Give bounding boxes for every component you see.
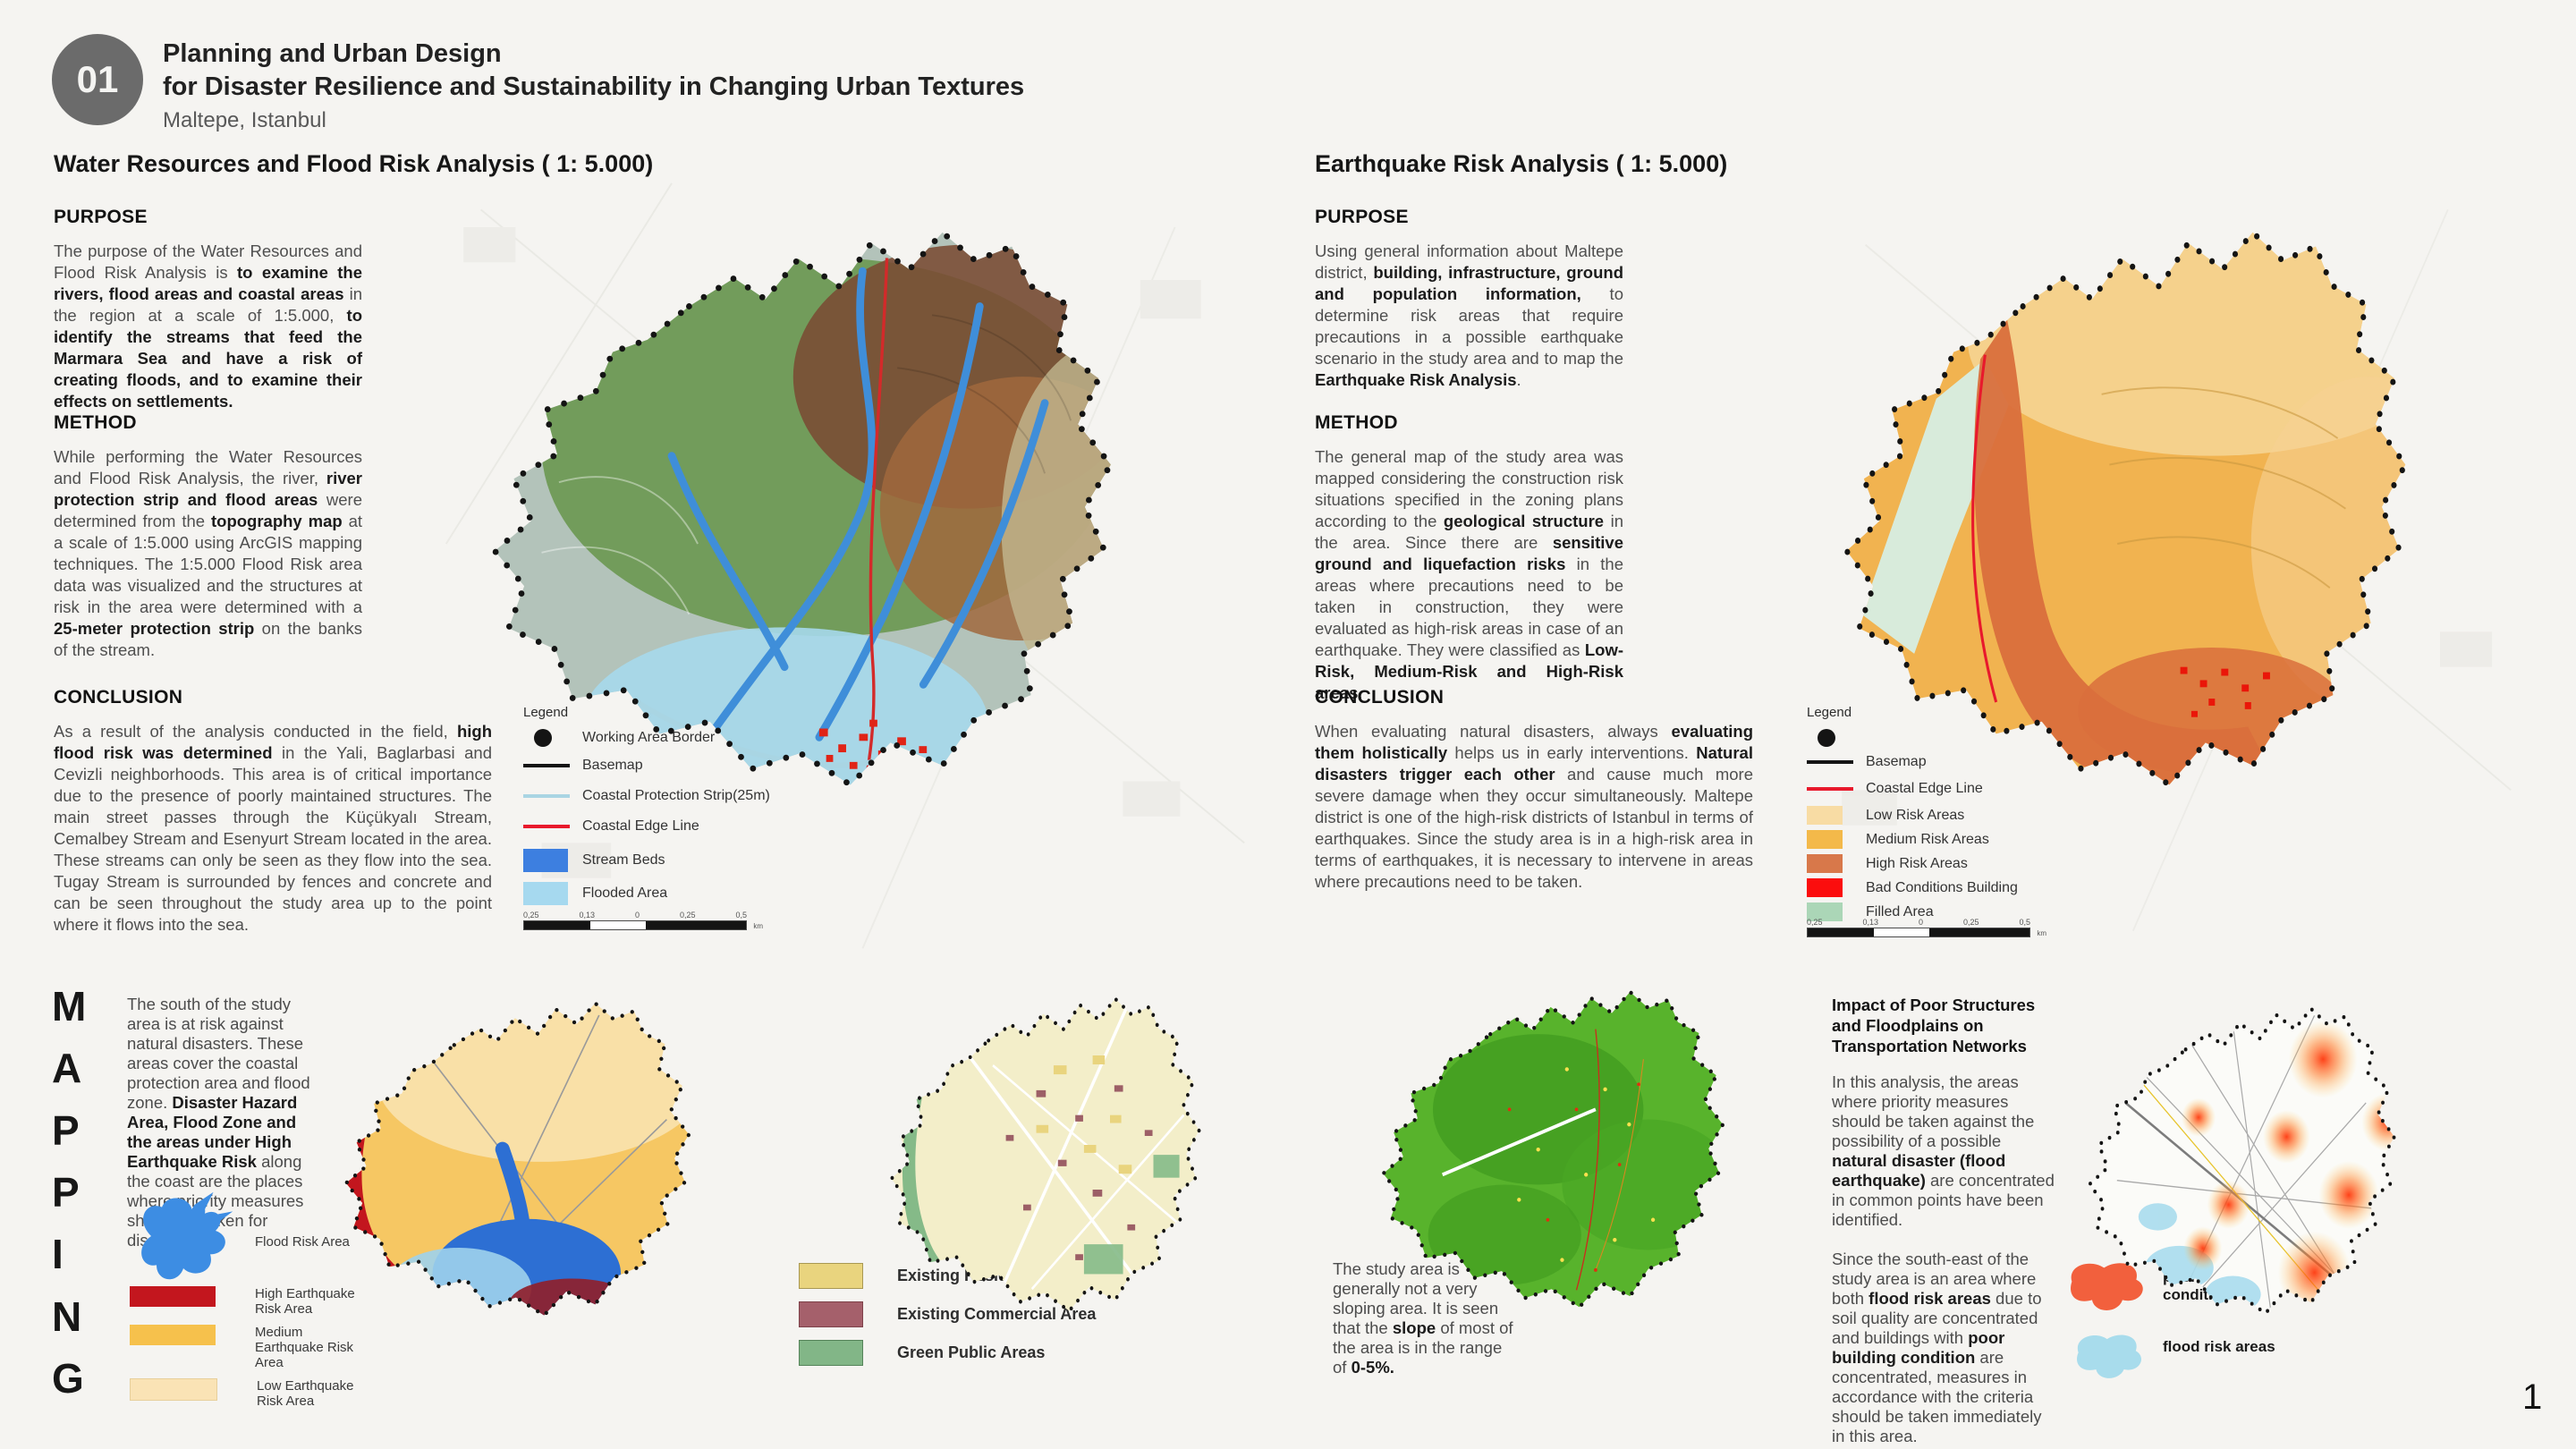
water-purpose-title: PURPOSE	[54, 207, 362, 228]
water-method-title: METHOD	[54, 412, 362, 434]
quake-purpose-section: PURPOSE Using general information about …	[1315, 207, 1623, 391]
poster-title-line2: for Disaster Resilience and Sustainabili…	[163, 71, 1024, 104]
scalebar-labels: 0,25 0,13 0 0,25 0,5	[523, 911, 747, 919]
basemap-swatch	[523, 764, 570, 767]
legend-item: Coastal Edge Line	[1807, 781, 2066, 797]
medium-risk-areas-swatch	[1807, 830, 1843, 849]
water-purpose-section: PURPOSE The purpose of the Water Resourc…	[54, 207, 362, 412]
legend-item: Basemap	[1807, 754, 2066, 770]
poster-subtitle: Maltepe, Istanbul	[163, 106, 1024, 135]
water-map-scalebar: 0,25 0,13 0 0,25 0,5 km	[523, 911, 747, 930]
quake-method-title: METHOD	[1315, 412, 1623, 434]
legend-item: Working Area Border	[523, 729, 774, 747]
water-method-text: While performing the Water Resources and…	[54, 446, 362, 661]
water-purpose-text: The purpose of the Water Resources and F…	[54, 241, 362, 412]
flooded-area-swatch	[523, 882, 568, 905]
high-earthquake-risk-swatch	[130, 1286, 216, 1307]
flood-risk-area-shape	[130, 1188, 237, 1284]
low-earthquake-risk-swatch	[130, 1378, 217, 1401]
slope-map	[1337, 959, 1816, 1411]
poster-title-line1: Planning and Urban Design	[163, 38, 1024, 71]
scalebar-bar	[1807, 928, 2030, 937]
hazard-composite-map	[300, 970, 783, 1418]
page-number: 1	[2522, 1377, 2542, 1418]
quake-map-legend: Legend Basemap Coastal Edge Line Low Ris…	[1807, 705, 2066, 929]
quake-legend-title: Legend	[1807, 705, 2066, 720]
basemap-swatch	[1807, 760, 1853, 764]
transport-impact-section: Impact of Poor Structures and Floodplain…	[1832, 995, 2055, 1446]
low-risk-areas-swatch	[1807, 806, 1843, 825]
bad-conditions-building-swatch	[1807, 878, 1843, 897]
quake-method-section: METHOD The general map of the study area…	[1315, 412, 1623, 704]
legend-item: High Risk Areas	[1807, 854, 2066, 873]
quake-purpose-title: PURPOSE	[1315, 207, 1623, 228]
medium-earthquake-risk-swatch	[130, 1325, 216, 1345]
transport-impact-map	[2048, 977, 2478, 1413]
mapping-vertical-title: M A P P I N G	[52, 986, 109, 1399]
transport-impact-heading: Impact of Poor Structures and Floodplain…	[1832, 995, 2055, 1056]
water-method-section: METHOD While performing the Water Resour…	[54, 412, 362, 661]
coastal-edge-line-swatch	[523, 825, 570, 828]
working-area-border-swatch	[534, 729, 552, 747]
quake-panel-heading: Earthquake Risk Analysis ( 1: 5.000)	[1315, 150, 1727, 178]
legend-item: Basemap	[523, 758, 774, 774]
transport-impact-paragraph-1: In this analysis, the areas where priori…	[1832, 1072, 2055, 1230]
scalebar-labels: 0,25 0,13 0 0,25 0,5	[1807, 918, 2030, 927]
poster-board: 01 Planning and Urban Design for Disaste…	[0, 0, 2576, 1449]
transport-impact-paragraph-2: Since the south-east of the study area i…	[1832, 1250, 2055, 1446]
poster-title-block: Planning and Urban Design for Disaster R…	[163, 38, 1024, 135]
quake-conclusion-text: When evaluating natural disasters, alway…	[1315, 721, 1753, 893]
quake-map-scalebar: 0,25 0,13 0 0,25 0,5 km	[1807, 918, 2030, 937]
legend-item	[1807, 729, 2066, 747]
legend-item: Bad Conditions Building	[1807, 878, 2066, 897]
legend-item: Medium Risk Areas	[1807, 830, 2066, 849]
working-area-border-swatch	[1818, 729, 1835, 747]
quake-conclusion-section: CONCLUSION When evaluating natural disas…	[1315, 687, 1753, 893]
quake-conclusion-title: CONCLUSION	[1315, 687, 1753, 708]
stream-beds-swatch	[523, 849, 568, 872]
coastal-edge-line-swatch	[1807, 787, 1853, 791]
legend-item: Stream Beds	[523, 849, 774, 872]
quake-purpose-text: Using general information about Maltepe …	[1315, 241, 1623, 391]
quake-method-text: The general map of the study area was ma…	[1315, 446, 1623, 704]
land-use-map	[850, 966, 1284, 1413]
high-risk-areas-swatch	[1807, 854, 1843, 873]
scalebar-bar	[523, 920, 747, 930]
legend-item: Coastal Edge Line	[523, 818, 774, 835]
water-map-legend: Legend Working Area Border Basemap Coast…	[523, 705, 774, 913]
legend-item: Low Risk Areas	[1807, 806, 2066, 825]
water-legend-title: Legend	[523, 705, 774, 720]
section-number-badge: 01	[52, 34, 143, 125]
legend-item: Flooded Area	[523, 882, 774, 905]
legend-item: Coastal Protection Strip(25m)	[523, 788, 774, 804]
coastal-protection-strip-swatch	[523, 794, 570, 798]
